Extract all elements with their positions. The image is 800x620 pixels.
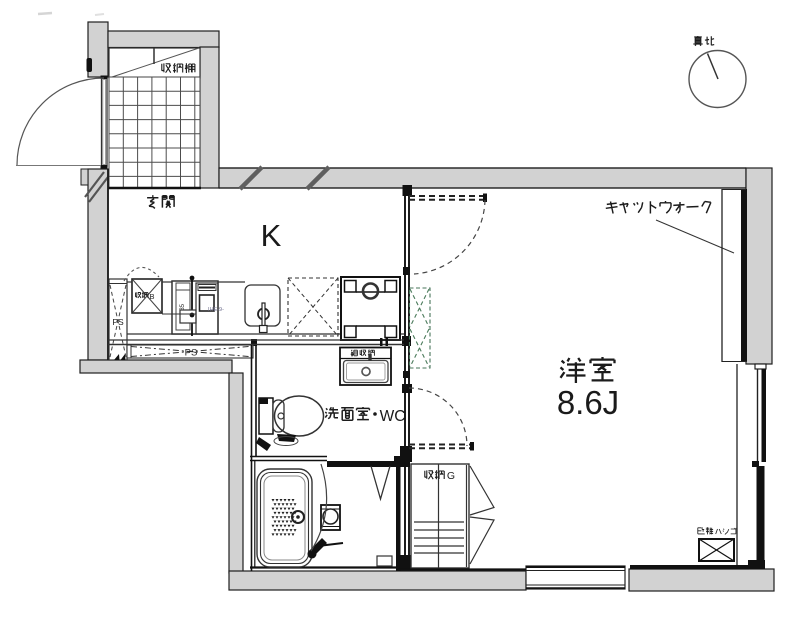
svg-text:8.6J: 8.6J	[557, 384, 619, 421]
svg-text:IHE-9-: IHE-9-	[208, 307, 224, 313]
svg-text:WC: WC	[380, 408, 406, 425]
svg-text:K: K	[261, 218, 282, 253]
svg-text:B: B	[149, 292, 154, 301]
svg-text:PS: PS	[185, 348, 198, 359]
svg-text:G: G	[447, 470, 455, 482]
svg-text:PS: PS	[112, 317, 124, 327]
